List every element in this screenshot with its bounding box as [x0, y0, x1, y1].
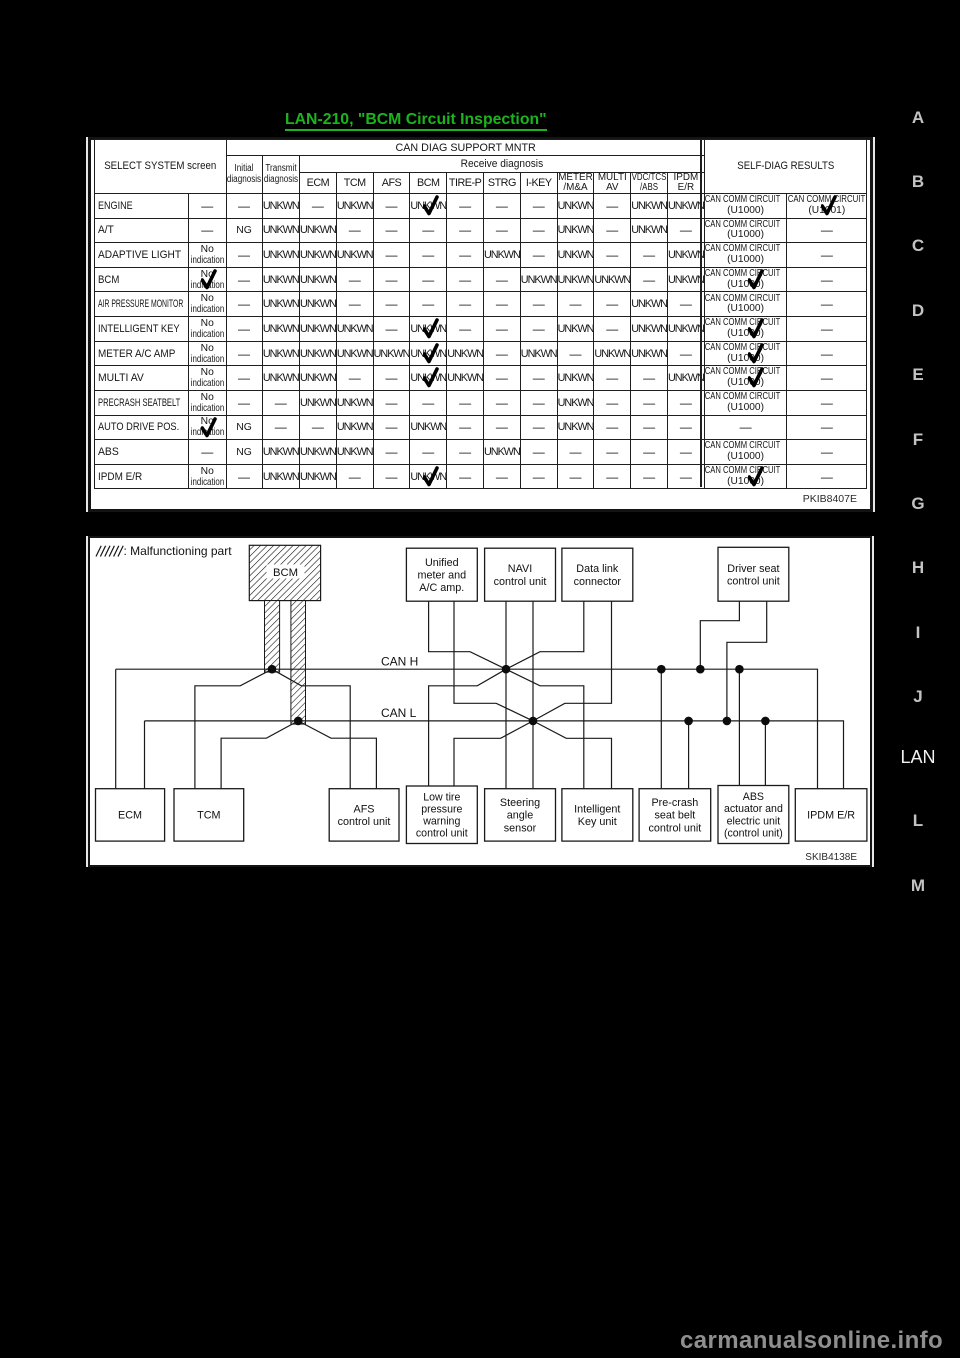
svg-text:AFS: AFS: [354, 803, 375, 815]
svg-text:control unit: control unit: [494, 576, 547, 588]
svg-text:CAN L: CAN L: [381, 706, 417, 720]
svg-text:: Malfunctioning part: : Malfunctioning part: [124, 544, 233, 558]
svg-text:BCM: BCM: [273, 567, 298, 579]
svg-text:pressure: pressure: [421, 804, 462, 816]
svg-text:control unit: control unit: [727, 575, 780, 587]
svg-text:Key unit: Key unit: [578, 816, 617, 828]
svg-text:sensor: sensor: [504, 822, 537, 834]
svg-text:Driver seat: Driver seat: [727, 563, 779, 575]
svg-text:Data link: Data link: [576, 563, 619, 575]
svg-text:connector: connector: [574, 576, 622, 588]
svg-text:seat belt: seat belt: [654, 810, 695, 822]
svg-text:Unified: Unified: [425, 557, 459, 569]
svg-text:control unit: control unit: [338, 816, 391, 828]
svg-text:(control unit): (control unit): [724, 827, 783, 839]
svg-text:Pre-crash: Pre-crash: [651, 797, 698, 809]
svg-text:control unit: control unit: [416, 828, 468, 840]
svg-text:Low tire: Low tire: [423, 791, 460, 803]
svg-text:IPDM E/R: IPDM E/R: [807, 810, 855, 822]
svg-text:ABS: ABS: [743, 791, 764, 803]
svg-text:Steering: Steering: [500, 797, 540, 809]
svg-text:CAN H: CAN H: [381, 654, 418, 668]
svg-text:control unit: control unit: [648, 822, 701, 834]
svg-text:TCM: TCM: [197, 810, 220, 822]
svg-text:electric unit: electric unit: [727, 815, 781, 827]
svg-text:actuator and: actuator and: [724, 803, 783, 815]
svg-text:A/C amp.: A/C amp.: [419, 582, 464, 594]
svg-text:NAVI: NAVI: [508, 563, 532, 575]
svg-text:Intelligent: Intelligent: [574, 803, 620, 815]
svg-text:angle: angle: [507, 810, 533, 822]
svg-text:warning: warning: [422, 816, 460, 828]
svg-text:ECM: ECM: [118, 810, 142, 822]
svg-text:meter and: meter and: [417, 570, 466, 582]
